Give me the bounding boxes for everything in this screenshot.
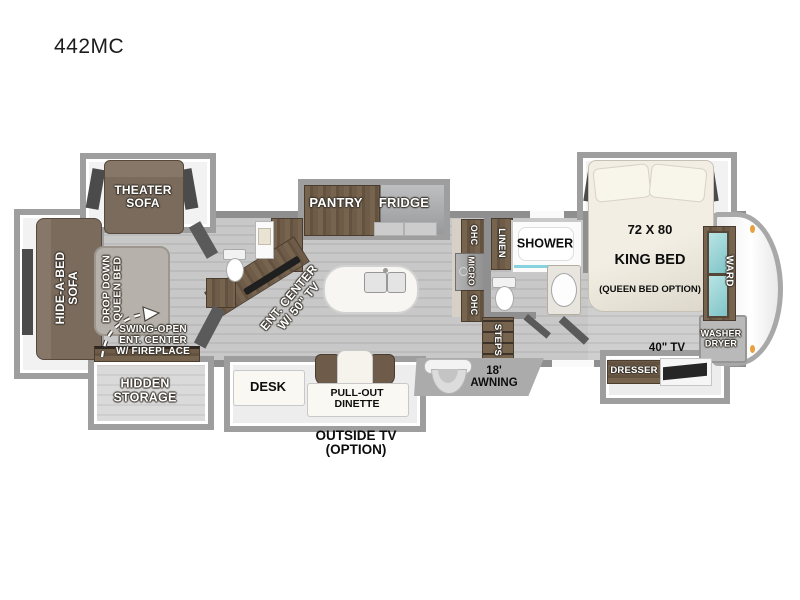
label-awning: 18' AWNING [470, 365, 517, 389]
label-shower: SHOWER [517, 237, 573, 250]
label-king-bed: 72 X 80 KING BED (QUEEN BED OPTION) [590, 206, 710, 312]
ent-center-counter [206, 278, 236, 308]
bedroom-tv [663, 363, 707, 381]
island-sink [387, 272, 406, 293]
bath-wall [484, 211, 491, 319]
bath-sink [551, 273, 577, 307]
label-hidden-storage: HIDDEN STORAGE [114, 378, 177, 405]
bath-vanity [547, 265, 581, 315]
kitchen-counter [374, 222, 404, 236]
window-dark [22, 249, 33, 335]
kitchen-island [323, 265, 419, 314]
window-dark [86, 168, 106, 210]
island-faucet [383, 268, 388, 273]
label-drop-down-queen: DROP DOWN QUEEN BED [102, 255, 125, 323]
half-bath-vanity [255, 221, 274, 259]
label-tv-40: 40" TV [649, 342, 685, 354]
label-linen: LINEN [496, 228, 506, 258]
label-ohc-lower: OHC [468, 295, 478, 316]
label-fridge: FRIDGE [379, 196, 429, 210]
kitchen-counter [404, 222, 437, 236]
marker-light [750, 225, 755, 233]
floorplan-442mc: 442MC [0, 0, 800, 600]
king-bed-type: KING BED [590, 253, 710, 268]
king-bed-option: (QUEEN BED OPTION) [590, 285, 710, 295]
bath-toilet-bowl [495, 286, 514, 311]
label-dresser: DRESSER [610, 366, 657, 376]
label-desk: DESK [250, 380, 286, 394]
label-swing-open: SWING-OPEN ENT. CENTER W/ FIREPLACE [116, 325, 190, 357]
window [530, 211, 564, 218]
label-washer-dryer: WASHER DRYER [701, 329, 742, 348]
label-pull-out-dinette: PULL-OUT DINETTE [330, 388, 383, 410]
label-pantry: PANTRY [309, 196, 362, 210]
marker-light [750, 345, 755, 353]
pantry-cabinet [304, 185, 380, 236]
label-ohc-upper: OHC [468, 225, 478, 246]
label-micro: MICRO [466, 256, 475, 285]
label-steps: STEPS [492, 324, 502, 356]
label-ward: WARD [723, 255, 734, 286]
label-theater-sofa: THEATER SOFA [114, 184, 171, 210]
king-bed-size: 72 X 80 [590, 223, 710, 237]
window [552, 360, 594, 367]
half-bath-toilet-bowl [226, 258, 244, 282]
page-title: 442MC [54, 36, 124, 58]
pillow [592, 163, 651, 203]
half-bath-sink [258, 228, 271, 245]
island-sink [364, 272, 387, 293]
pillow [648, 163, 707, 203]
label-outside-tv: OUTSIDE TV (OPTION) [315, 429, 396, 457]
label-hide-a-bed: HIDE-A-BED SOFA [54, 252, 80, 325]
bedroom-tv-cabinet [660, 358, 712, 386]
